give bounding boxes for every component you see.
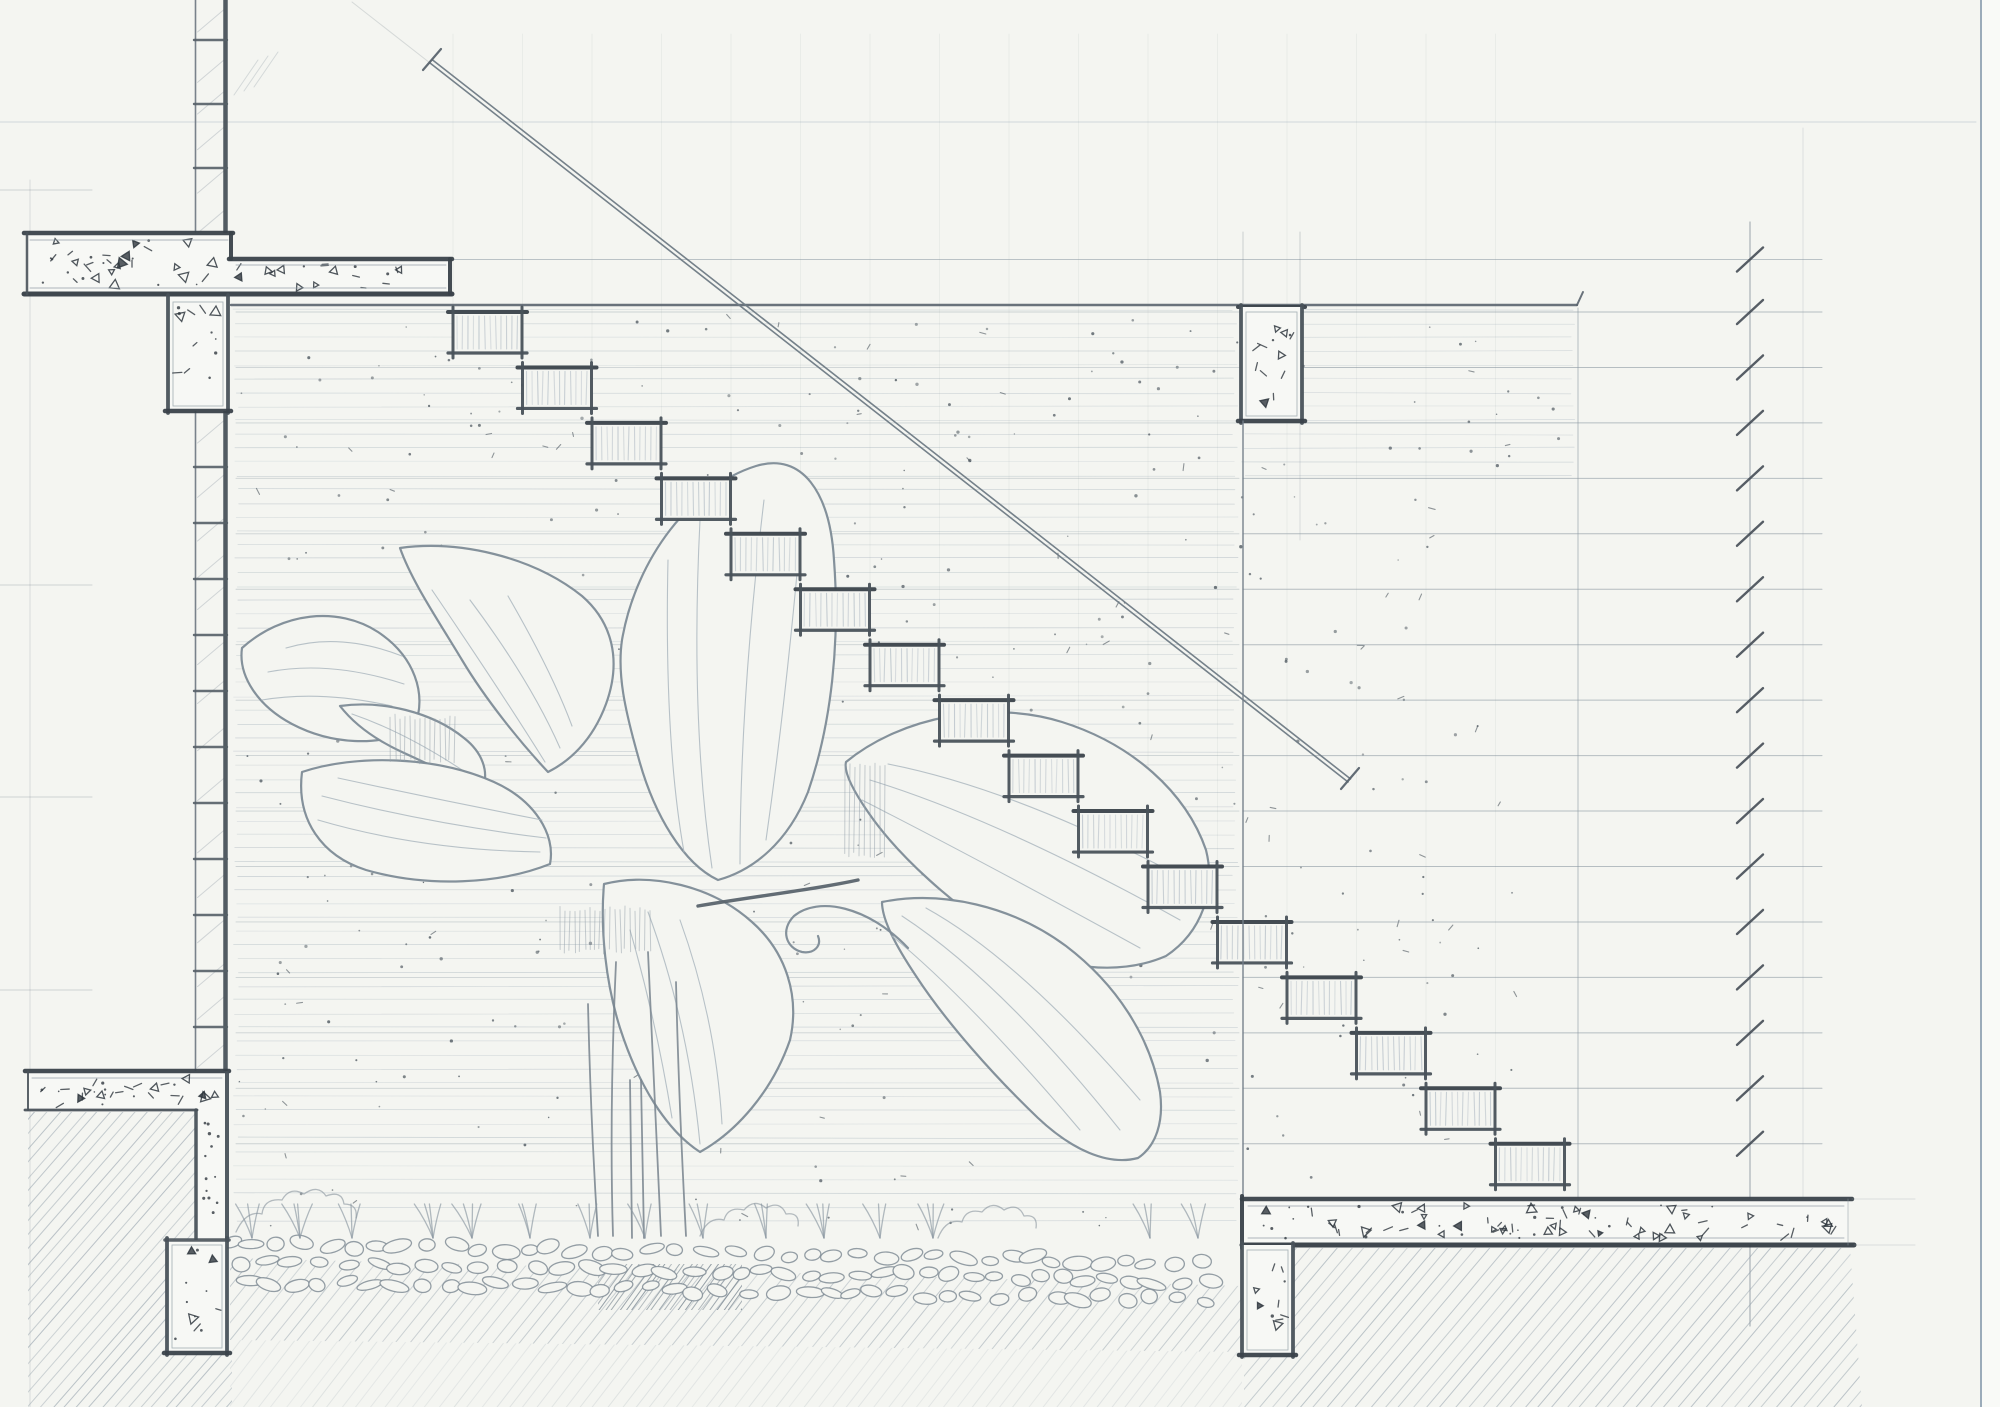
- lower-right-column: [1239, 1243, 1296, 1357]
- stair-step: [1143, 862, 1222, 913]
- stair-step: [1491, 1139, 1570, 1190]
- stair-step: [448, 307, 527, 358]
- sketch-page: [0, 0, 2000, 1407]
- page-border-edge: [1981, 0, 2000, 1407]
- stair-section-drawing: [0, 0, 2000, 1407]
- stair-step: [518, 362, 597, 413]
- stair-step: [657, 473, 736, 524]
- stair-step: [1282, 972, 1361, 1023]
- lower-left-column: [164, 1238, 230, 1355]
- stair-step: [1004, 751, 1083, 802]
- stair-step: [1421, 1083, 1500, 1134]
- stair-step: [726, 529, 805, 580]
- stair-step: [935, 695, 1014, 746]
- upper-left-column: [165, 295, 231, 413]
- stair-step: [1074, 806, 1153, 857]
- stair-step: [796, 584, 875, 635]
- stair-step: [1352, 1028, 1431, 1079]
- stair-step: [865, 640, 944, 691]
- stair-step: [587, 418, 666, 469]
- stair-step: [1213, 917, 1292, 968]
- lower-right-landing-slab: [1242, 1196, 1915, 1248]
